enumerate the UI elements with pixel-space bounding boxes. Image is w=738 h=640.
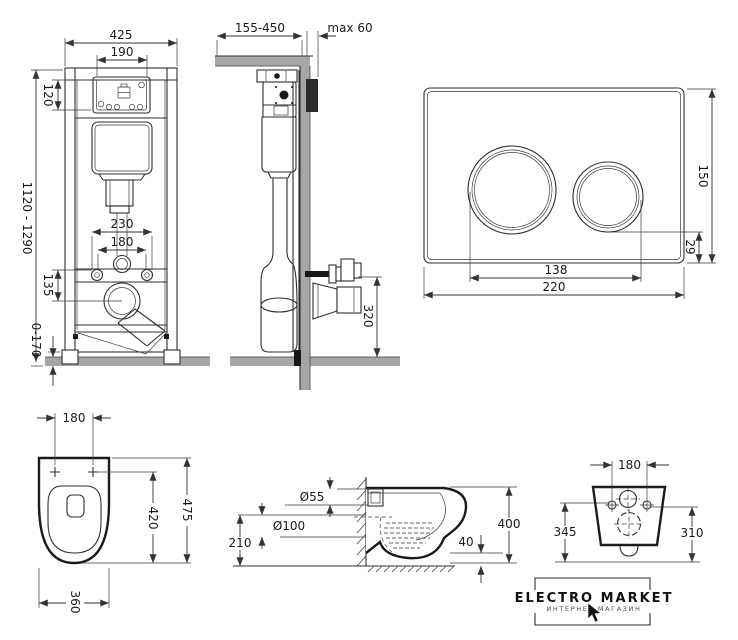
view-bowl-top: 180 475 420 360	[37, 411, 194, 613]
dim-inlet-diameter: Ø55	[300, 490, 325, 504]
drain-cone	[313, 283, 361, 319]
dim-bowl-width: 360	[68, 591, 82, 614]
dim-bowl-depth: 475	[180, 499, 194, 522]
dim-plate-width: 220	[543, 280, 566, 294]
ground-hatch	[368, 566, 454, 572]
dim-outlet-height: 320	[361, 305, 375, 328]
shelf	[215, 56, 310, 66]
dim-rim-offset: 40	[458, 535, 473, 549]
wall-hatch	[357, 479, 366, 566]
logo-electro-market[interactable]: ELECTRO MARKET ИНТЕРНЕТ-МАГАЗИН	[515, 578, 674, 625]
view-bowl-back: 180 345 310	[550, 458, 707, 562]
water-supply-pipe	[305, 259, 361, 283]
view-frame-front: 425 190 1120 - 1290 120 230 180 135 0-17…	[20, 28, 210, 386]
view-frame-side: 155-450 max 60 320	[215, 21, 400, 390]
dim-back-height-right: 310	[681, 526, 704, 540]
dim-outlet-diameter: Ø100	[273, 519, 305, 533]
dim-outlet-center-height: 210	[229, 536, 252, 550]
dim-fixing-spacing: 180	[111, 235, 134, 249]
dim-service-opening-height: 120	[41, 84, 55, 107]
dim-service-opening-width: 190	[111, 45, 134, 59]
dim-drain-drop: 135	[41, 274, 55, 297]
dim-plate-bottom-margin: 29	[683, 239, 697, 254]
dim-back-bolt-spacing: 180	[618, 458, 641, 472]
flush-button-small[interactable]	[573, 162, 643, 232]
dim-back-height-left: 345	[554, 525, 577, 539]
dim-bowl-bolt-spacing: 180	[63, 411, 86, 425]
dim-button-spacing: 138	[545, 263, 568, 277]
dim-foot-adjust: 0-170	[29, 323, 43, 358]
view-flush-plate: 150 29 138 220	[424, 88, 716, 299]
view-bowl-side: Ø55 Ø100 210 40 400	[226, 477, 524, 583]
dim-wall-clearance: max 60	[327, 21, 372, 35]
bowl-outline	[39, 458, 109, 563]
dim-bowl-inner-depth: 420	[146, 507, 160, 530]
dim-plate-height: 150	[696, 165, 710, 188]
technical-drawing: 425 190 1120 - 1290 120 230 180 135 0-17…	[0, 0, 738, 640]
frame-foot	[62, 350, 78, 364]
dim-frame-height-range: 1120 - 1290	[20, 181, 34, 254]
frame-foot	[164, 350, 180, 364]
logo-frame-top	[535, 578, 650, 590]
flush-button-large[interactable]	[468, 146, 556, 234]
cistern-side	[261, 82, 297, 352]
dim-frame-width: 425	[110, 28, 133, 42]
dim-depth-range: 155-450	[235, 21, 285, 35]
logo-brand-text: ELECTRO MARKET	[515, 591, 674, 606]
frame-foot	[294, 350, 301, 366]
dim-fixing-spacing-wide: 230	[111, 217, 134, 231]
wall-bracket	[306, 79, 318, 112]
top-bracket	[257, 70, 297, 82]
dim-bowl-side-depth: 400	[498, 517, 521, 531]
wall	[300, 66, 310, 390]
floor-slab	[230, 357, 400, 366]
